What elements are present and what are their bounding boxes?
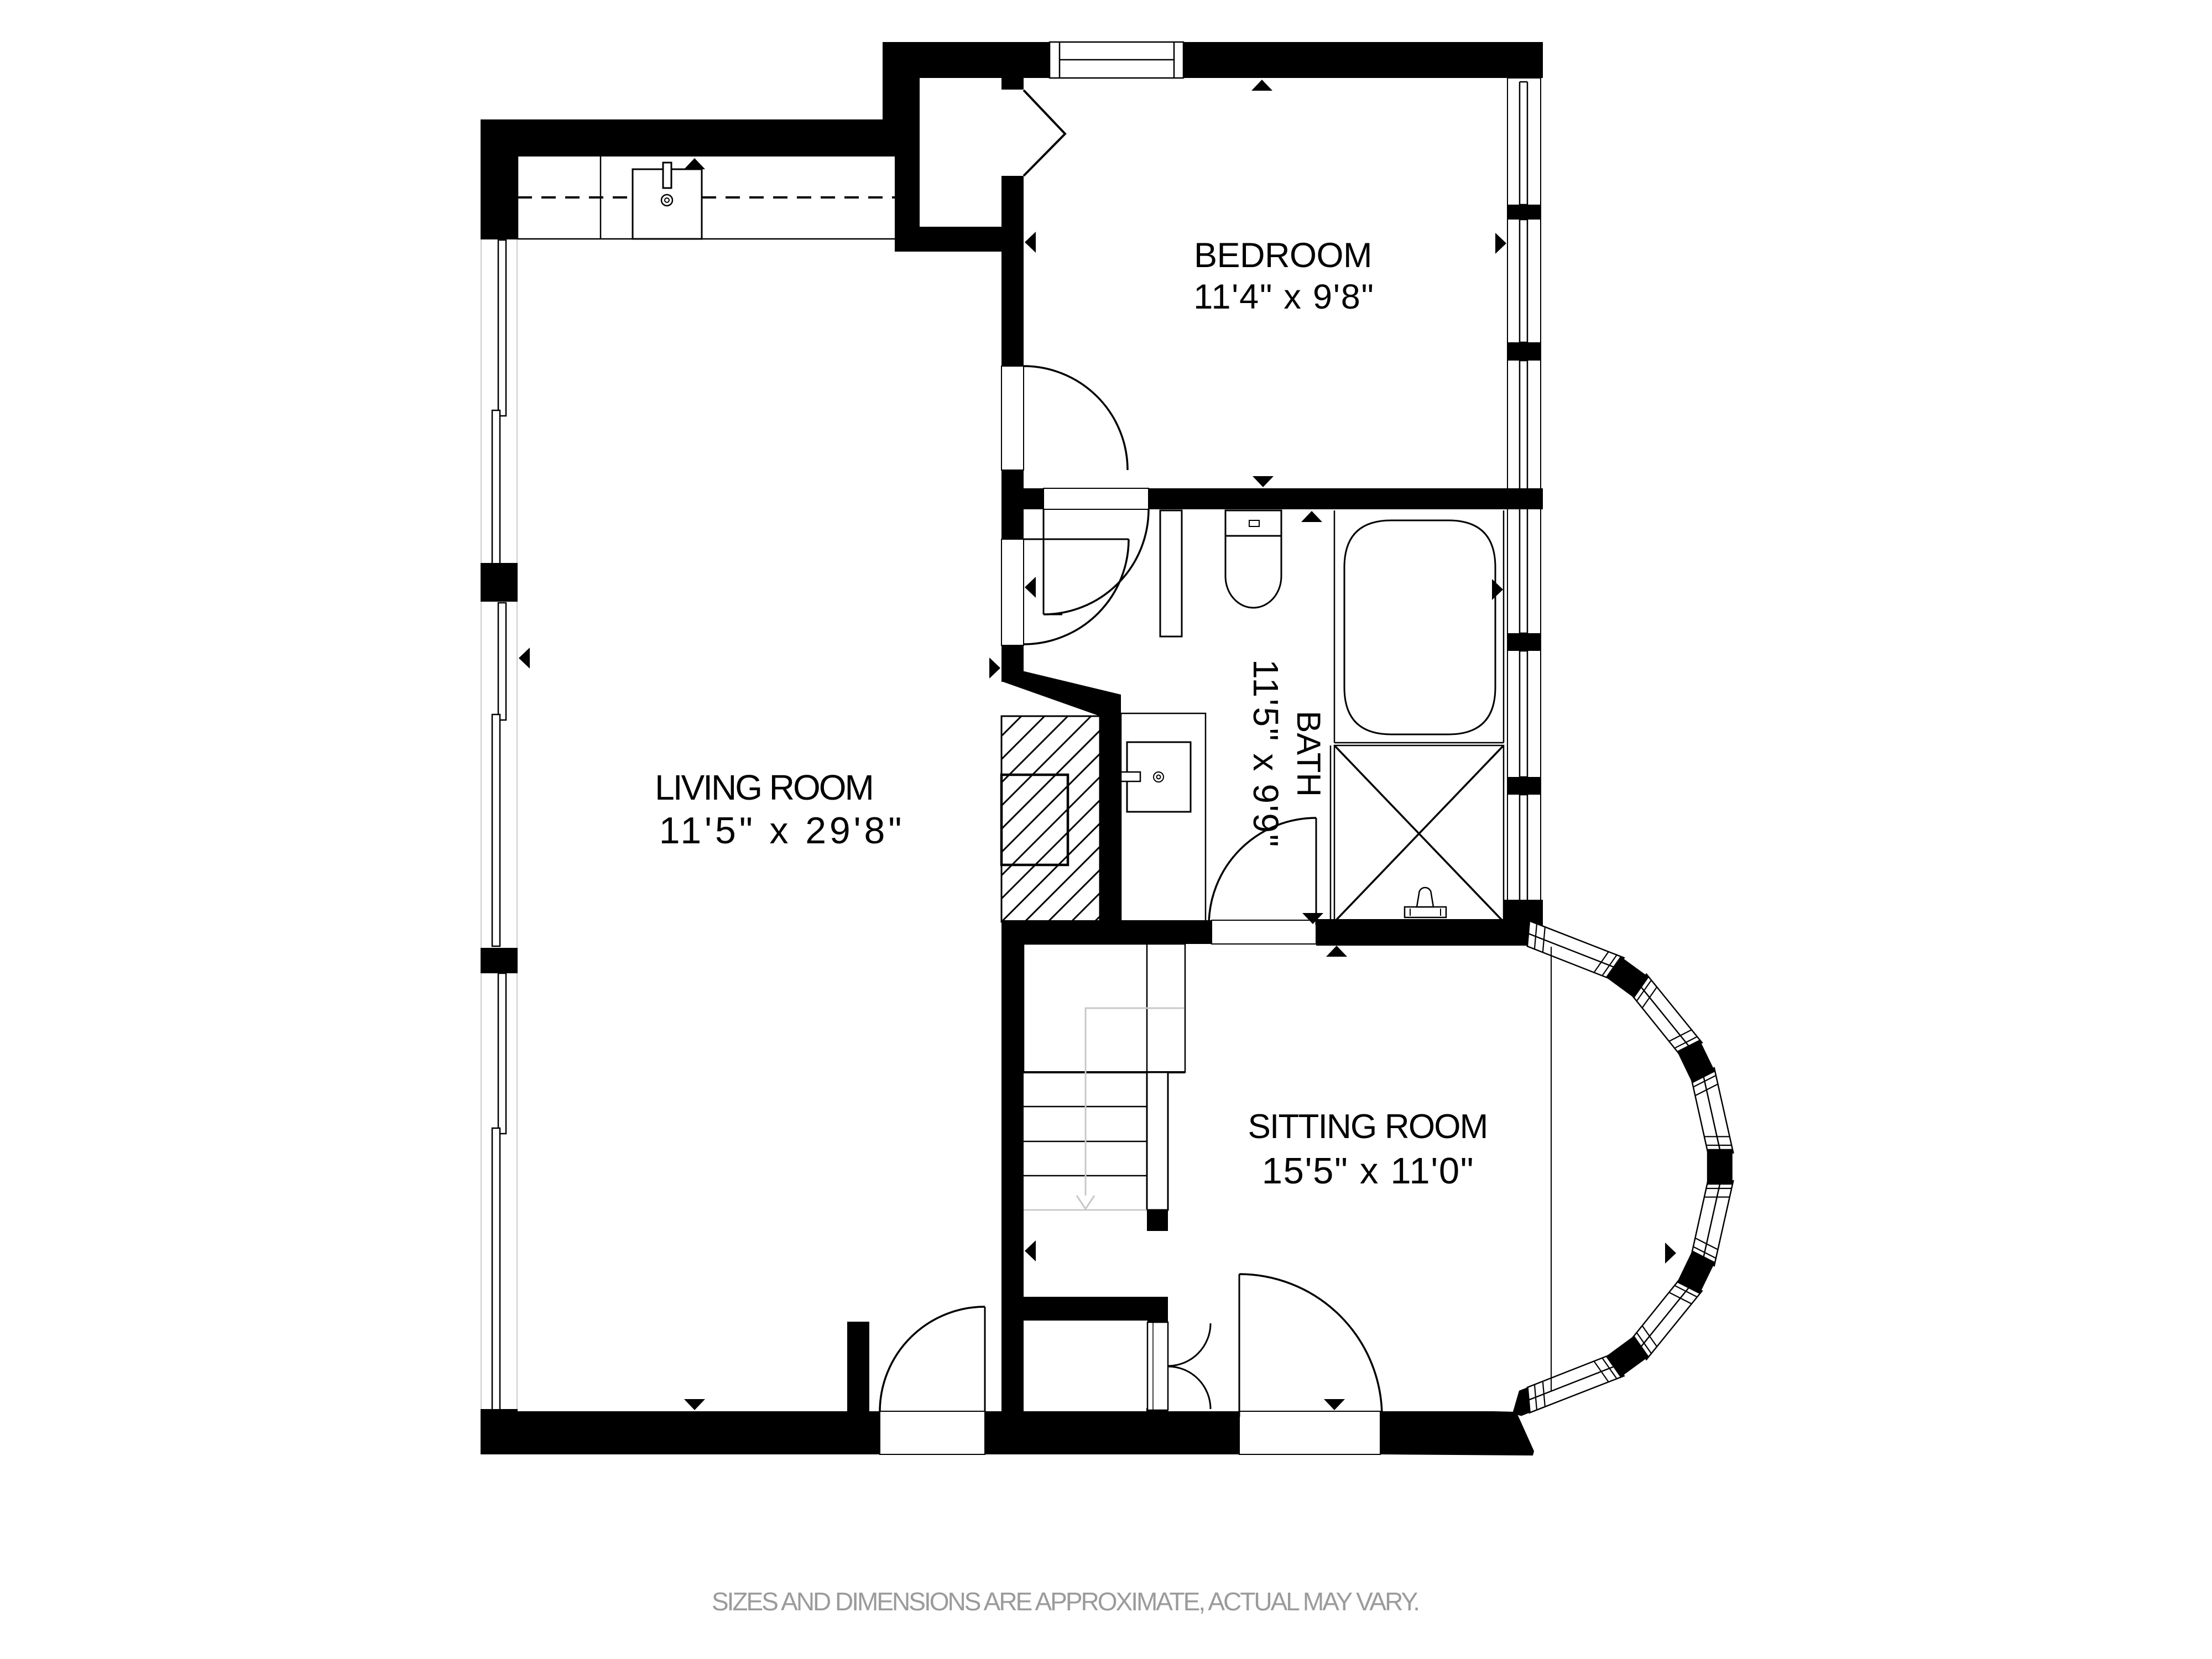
svg-text:11'5" x 29'8": 11'5" x 29'8" [659,810,905,852]
svg-text:BATH: BATH [1290,711,1327,797]
svg-text:SIZES AND DIMENSIONS ARE APPRO: SIZES AND DIMENSIONS ARE APPROXIMATE, AC… [712,1587,1418,1616]
svg-text:15'5" x 11'0": 15'5" x 11'0" [1262,1150,1475,1192]
svg-text:SITTING ROOM: SITTING ROOM [1248,1108,1487,1146]
svg-text:11'4" x 9'8": 11'4" x 9'8" [1193,278,1374,316]
svg-text:LIVING ROOM: LIVING ROOM [655,768,873,807]
svg-text:BEDROOM: BEDROOM [1194,236,1372,275]
svg-text:11'5" x 9'9": 11'5" x 9'9" [1246,659,1286,848]
